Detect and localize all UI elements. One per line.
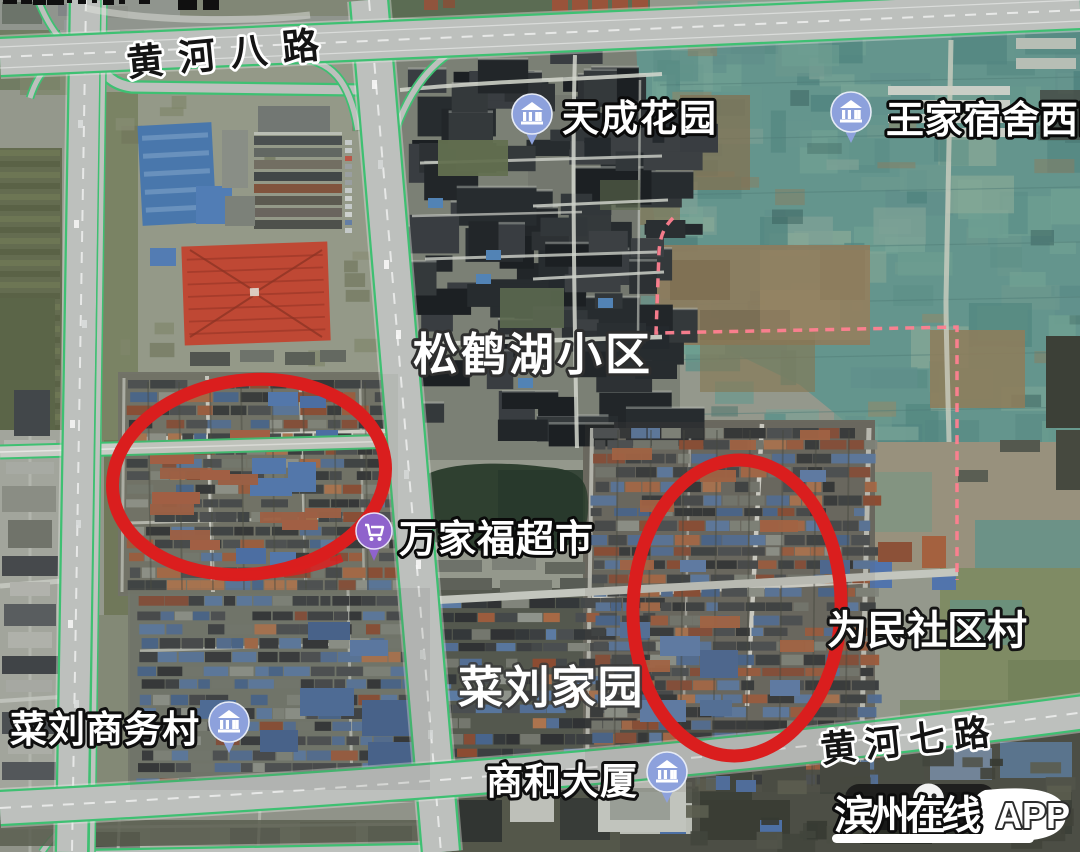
svg-text:菜刘家园: 菜刘家园 [458, 662, 644, 713]
svg-text:天成花园: 天成花园 [562, 98, 718, 139]
svg-text:为民社区村: 为民社区村 [827, 609, 1027, 653]
svg-text:松鹤湖小区: 松鹤湖小区 [413, 329, 653, 380]
svg-text:APP: APP [996, 795, 1070, 836]
svg-text:菜刘商务村: 菜刘商务村 [10, 709, 200, 750]
svg-text:万家福超市: 万家福超市 [399, 519, 594, 561]
svg-text:商和大厦: 商和大厦 [486, 761, 638, 802]
svg-text:王家宿舍西区: 王家宿舍西区 [886, 100, 1080, 142]
svg-text:滨州在线: 滨州在线 [834, 794, 981, 838]
